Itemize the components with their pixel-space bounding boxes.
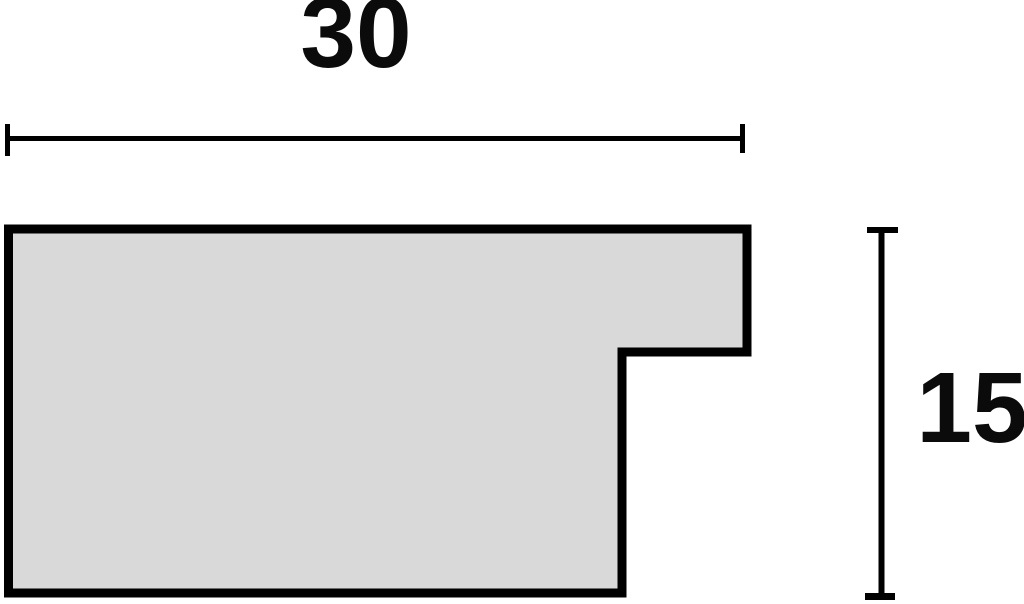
drawing-canvas: 30 15 (0, 0, 1024, 604)
moulding-profile-shape (9, 229, 748, 593)
width-dimension-label: 30 (281, 0, 431, 83)
height-dimension (865, 230, 898, 597)
height-dimension-label: 15 (897, 358, 1024, 458)
profile-drawing-svg (0, 0, 1024, 604)
width-dimension (8, 124, 744, 156)
